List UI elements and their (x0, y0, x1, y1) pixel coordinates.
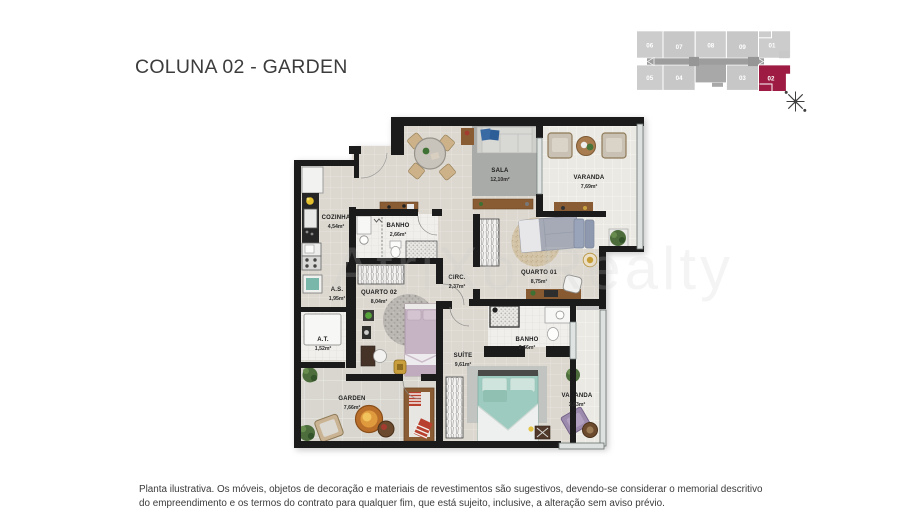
svg-text:02: 02 (768, 76, 775, 83)
svg-text:VARANDA: VARANDA (574, 175, 605, 181)
svg-text:GARDEN: GARDEN (338, 396, 365, 402)
svg-text:SALA: SALA (491, 168, 509, 174)
svg-text:2,66m²: 2,66m² (519, 345, 536, 351)
svg-text:AtriXo Realty: AtriXo Realty (332, 235, 734, 302)
svg-text:7,66m²: 7,66m² (344, 405, 361, 411)
svg-text:3,83m²: 3,83m² (569, 402, 586, 408)
svg-text:01: 01 (769, 42, 776, 49)
svg-text:7,69m²: 7,69m² (581, 184, 598, 190)
svg-text:1,52m²: 1,52m² (315, 346, 332, 352)
svg-text:do empreendimento e os termos: do empreendimento e os termos do contrat… (139, 498, 665, 509)
svg-text:Planta ilustrativa. Os móveis,: Planta ilustrativa. Os móveis, objetos d… (139, 484, 763, 495)
svg-text:SUÍTE: SUÍTE (454, 351, 473, 359)
svg-text:BANHO: BANHO (387, 223, 410, 229)
svg-text:4,54m²: 4,54m² (328, 224, 345, 230)
svg-text:07: 07 (676, 44, 683, 51)
svg-text:05: 05 (646, 75, 653, 82)
svg-text:12,10m²: 12,10m² (490, 177, 510, 183)
svg-text:06: 06 (646, 42, 653, 49)
svg-text:VARANDA: VARANDA (562, 393, 593, 399)
svg-text:COZINHA: COZINHA (322, 215, 351, 221)
svg-text:09: 09 (739, 44, 746, 51)
svg-text:9,61m²: 9,61m² (455, 362, 472, 368)
svg-text:08: 08 (707, 42, 714, 49)
svg-text:03: 03 (739, 75, 746, 82)
svg-text:COLUNA 02 - GARDEN: COLUNA 02 - GARDEN (135, 56, 348, 78)
svg-text:04: 04 (676, 75, 683, 82)
svg-text:A.T.: A.T. (317, 337, 329, 343)
svg-text:BANHO: BANHO (516, 337, 539, 343)
